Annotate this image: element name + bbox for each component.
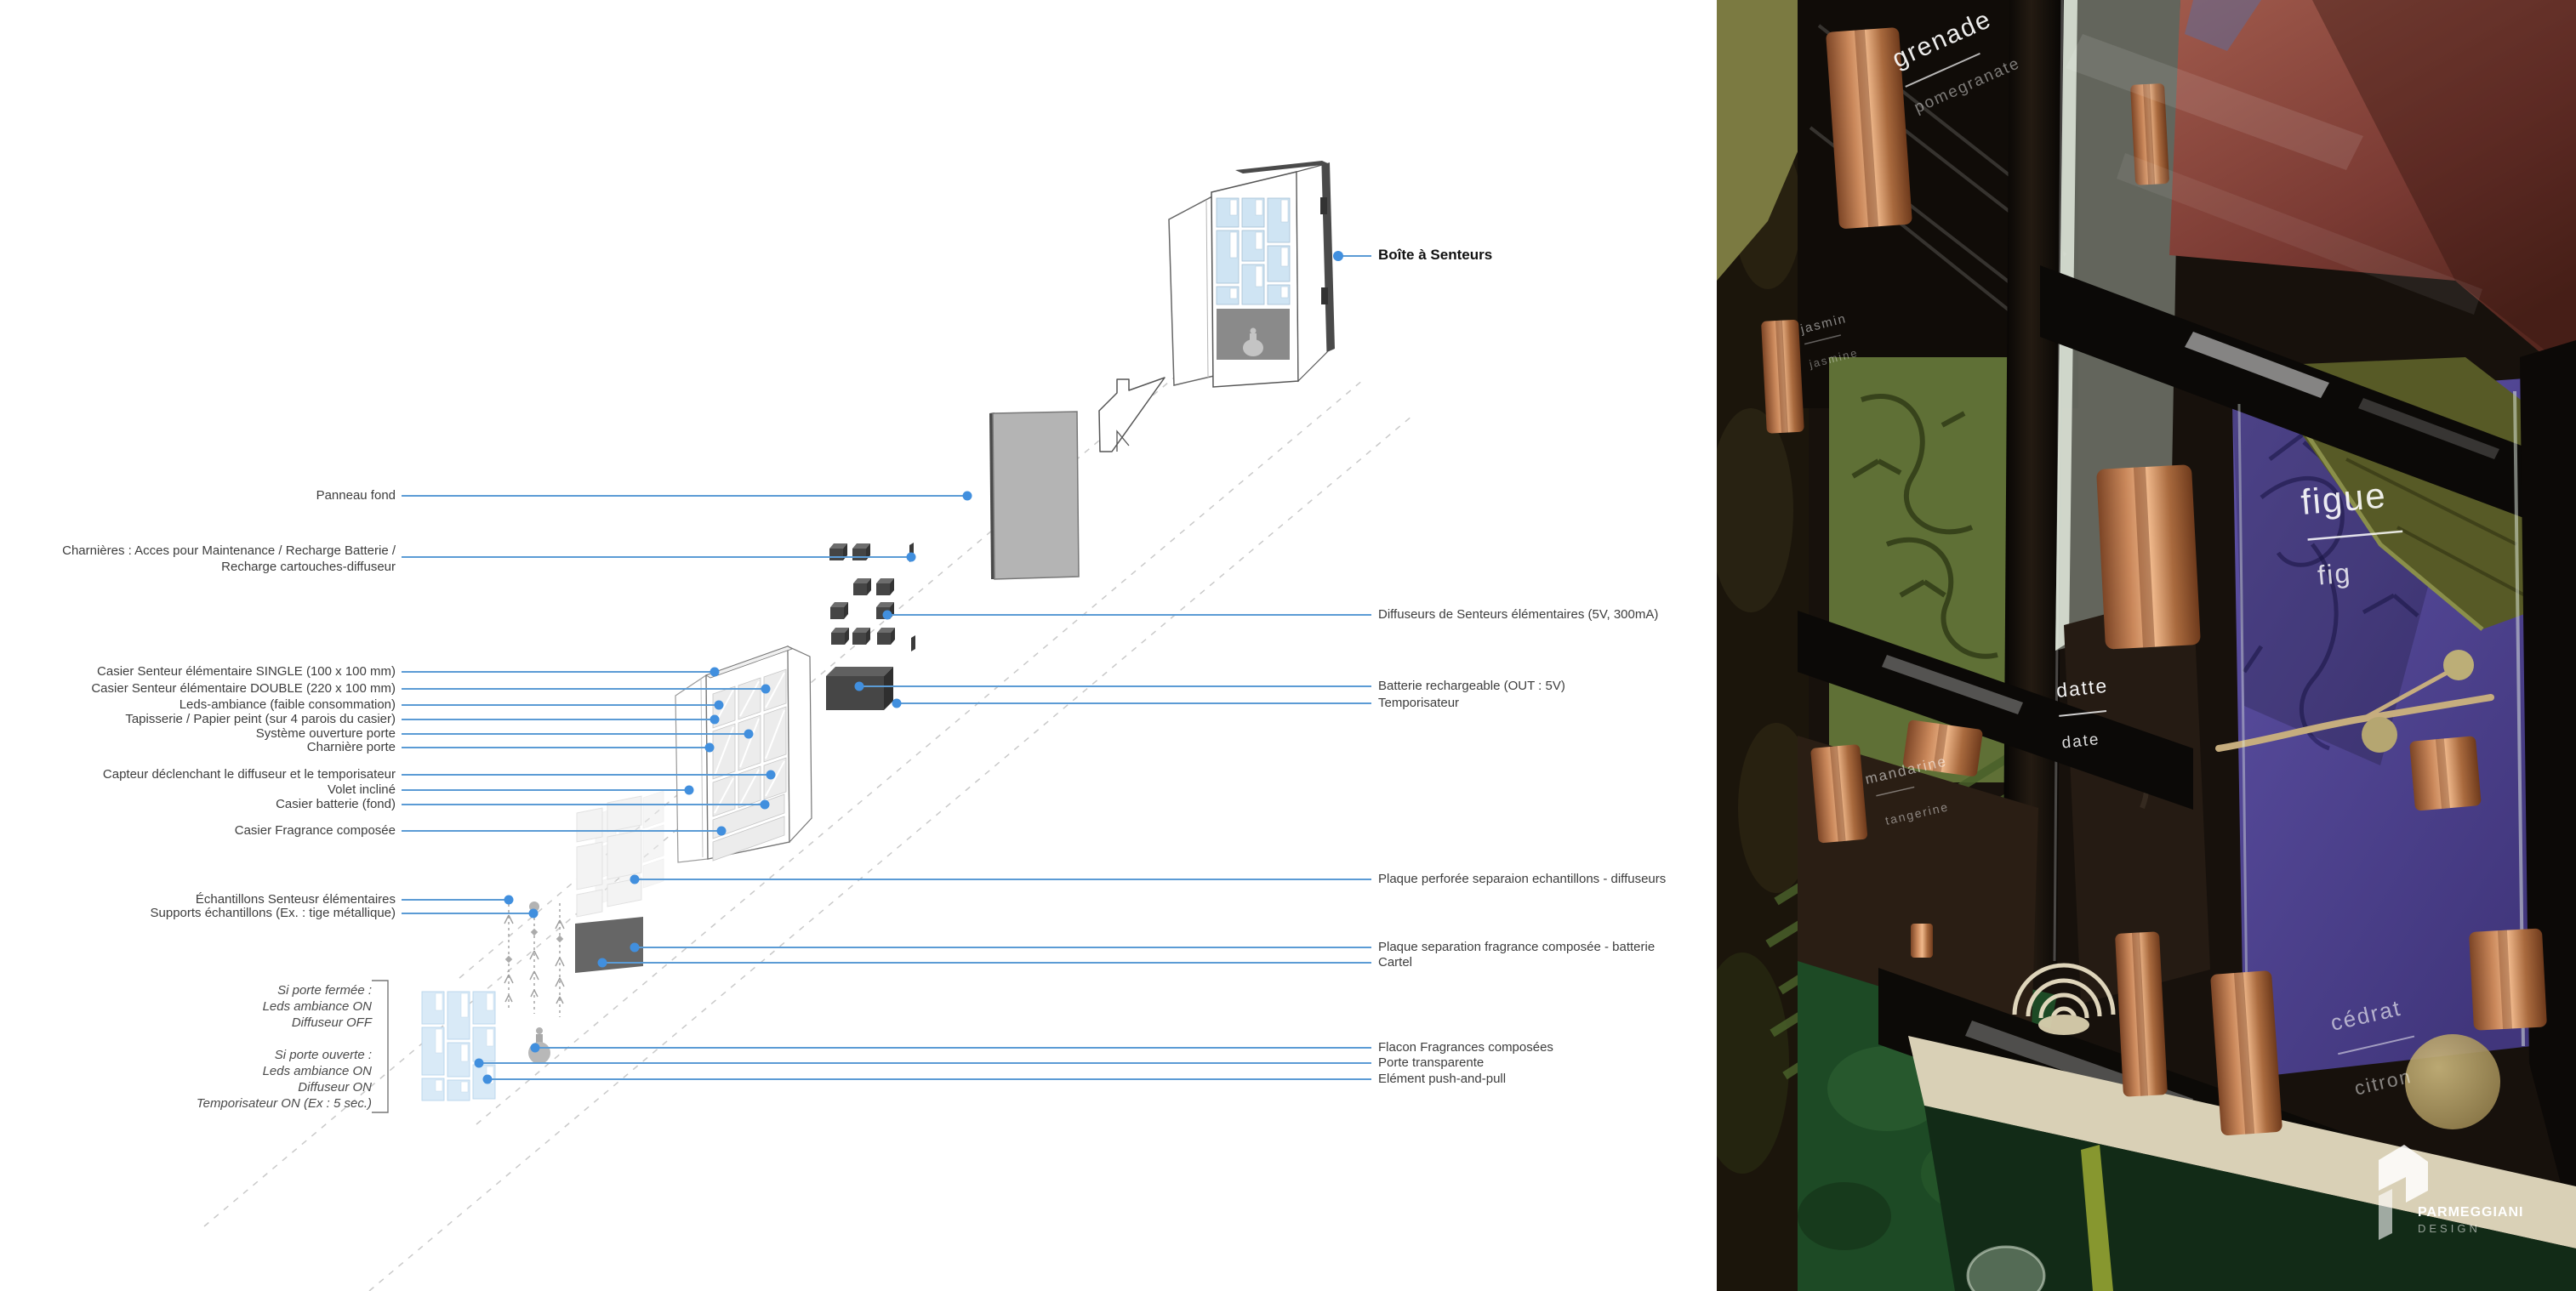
transparent-door [422,992,495,1100]
label-batterie: Batterie rechargeable (OUT : 5V) [1378,678,1565,694]
label-casier-single: Casier Senteur élémentaire SINGLE (100 x… [97,663,396,680]
scent-box-cabinet [1169,161,1335,387]
fig-text: fig [2317,557,2353,590]
design-board: Boîte à Senteurs Panneau fond Charnières… [0,0,2576,1291]
label-flacon: Flacon Fragrances composées [1378,1039,1553,1055]
label-capteur: Capteur déclenchant le diffuseur et le t… [103,766,396,782]
middle-cabinet [675,646,812,862]
logo-division: DESIGN [2418,1222,2481,1235]
notes-bracket [372,981,388,1112]
label-casier-fragrance: Casier Fragrance composée [235,822,396,839]
label-casier-double: Casier Senteur élémentaire DOUBLE (220 x… [91,680,396,697]
door-state-notes: Si porte fermée : Leds ambiance ON Diffu… [197,982,372,1112]
label-charniere-porte: Charnière porte [307,739,396,755]
diffuser-cubes [829,543,915,651]
citron-fruit [2405,1034,2500,1129]
logo-mark-stem [2379,1189,2392,1240]
diagram-title: Boîte à Senteurs [1378,247,1492,264]
hinge-bracket-icon [1099,378,1165,452]
back-panel [989,412,1079,579]
label-cartel: Cartel [1378,954,1412,970]
label-charnieres: Charnières : Acces pour Maintenance / Re… [62,543,396,575]
product-photo: grenade pomegranate jasmin jasmine figue… [1717,0,2576,1291]
perforated-plate [577,796,641,917]
label-porte-transparente: Porte transparente [1378,1055,1484,1071]
label-plaque-perforee: Plaque perforée separaion echantillons -… [1378,871,1666,887]
label-diffuseurs: Diffuseurs de Senteurs élémentaires (5V,… [1378,606,1658,623]
figue-text: figue [2300,475,2389,522]
label-supports: Supports échantillons (Ex. : tige métall… [151,905,396,921]
label-push-and-pull: Elément push-and-pull [1378,1071,1506,1087]
label-casier-batterie: Casier batterie (fond) [276,796,396,812]
label-plaque-separation: Plaque separation fragrance composée - b… [1378,939,1655,955]
label-panneau-fond: Panneau fond [316,487,396,503]
label-temporisateur: Temporisateur [1378,695,1459,711]
logo-brand: PARMEGGIANI [2418,1205,2523,1220]
